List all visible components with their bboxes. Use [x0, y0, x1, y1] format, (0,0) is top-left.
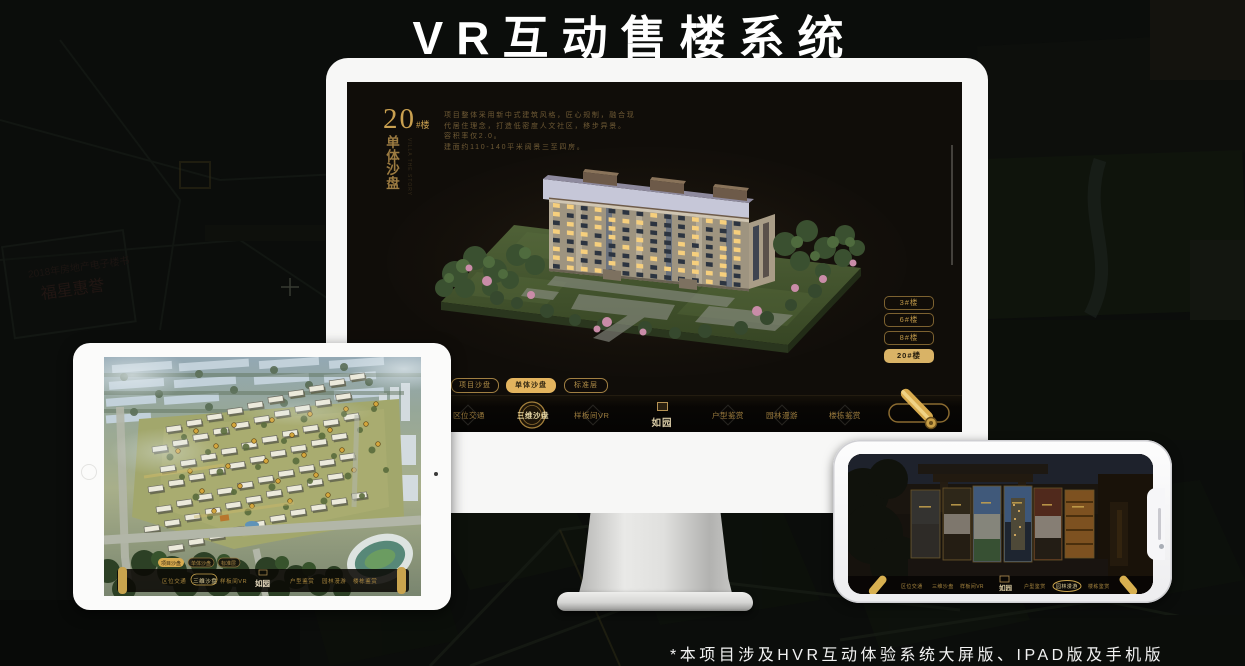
svg-text:户型鉴赏: 户型鉴赏: [290, 577, 314, 585]
svg-text:样板间VR: 样板间VR: [220, 577, 247, 585]
svg-text:三维沙盘: 三维沙盘: [193, 577, 217, 585]
svg-text:标准层: 标准层: [221, 560, 236, 567]
svg-text:楼栋鉴赏: 楼栋鉴赏: [353, 577, 377, 585]
svg-text:楼栋鉴赏: 楼栋鉴赏: [1088, 583, 1110, 590]
svg-text:区位交通: 区位交通: [901, 583, 923, 590]
svg-text:三维沙盘: 三维沙盘: [932, 583, 954, 590]
svg-text:如园: 如园: [255, 578, 270, 588]
svg-text:户型鉴赏: 户型鉴赏: [1024, 583, 1046, 590]
svg-text:如园: 如园: [999, 583, 1013, 592]
svg-text:园林漫游: 园林漫游: [1056, 583, 1078, 590]
svg-text:项目沙盘: 项目沙盘: [161, 560, 181, 567]
svg-text:单体沙盘: 单体沙盘: [191, 560, 211, 567]
svg-text:园林漫游: 园林漫游: [322, 577, 346, 585]
svg-text:区位交通: 区位交通: [162, 577, 186, 585]
svg-text:样板间VR: 样板间VR: [960, 583, 984, 590]
